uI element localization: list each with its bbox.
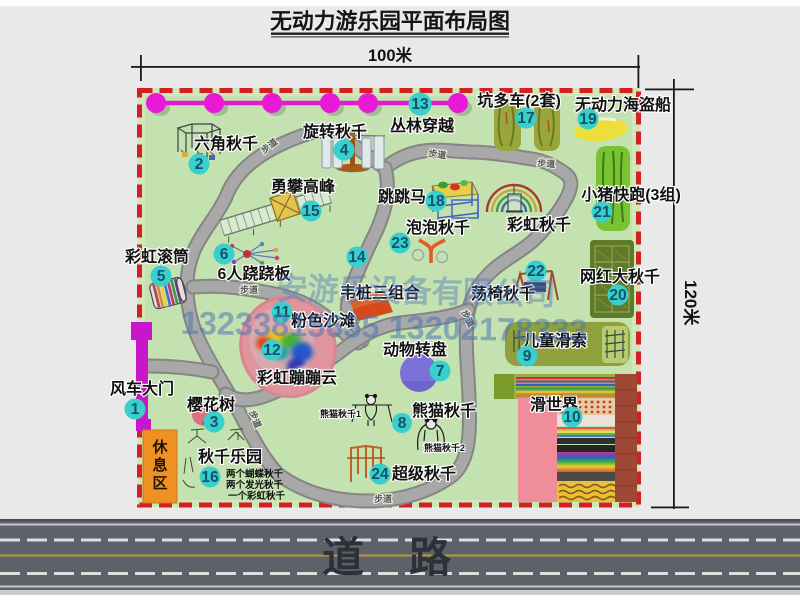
svg-text:21: 21 [593,204,611,221]
svg-text:樱花树: 樱花树 [187,395,235,414]
svg-text:风车大门: 风车大门 [110,379,174,398]
svg-text:彩虹秋千: 彩虹秋千 [506,215,571,234]
svg-text:熊猫秋千1: 熊猫秋千1 [320,408,361,419]
svg-text:16: 16 [201,469,219,486]
svg-text:12: 12 [263,342,280,359]
svg-text:路: 路 [409,534,452,581]
svg-text:彩虹滚筒: 彩虹滚筒 [124,247,189,266]
svg-text:两个蝴蝶秋千: 两个蝴蝶秋千 [226,468,284,480]
svg-text:3: 3 [210,414,219,431]
svg-text:无动力游乐园平面布局图: 无动力游乐园平面布局图 [270,9,510,34]
svg-text:息: 息 [152,456,167,474]
svg-text:23: 23 [391,235,409,252]
svg-text:14: 14 [348,249,366,266]
svg-text:8: 8 [398,415,407,432]
svg-text:秋千乐园: 秋千乐园 [198,447,262,466]
svg-text:18: 18 [427,193,445,210]
svg-text:100米: 100米 [368,45,413,65]
svg-text:步道: 步道 [240,284,258,295]
svg-text:19: 19 [579,111,597,128]
svg-text:道: 道 [322,534,364,581]
svg-text:9: 9 [523,348,532,365]
svg-text:熊猫秋千: 熊猫秋千 [412,401,476,420]
svg-text:7: 7 [436,363,445,380]
svg-text:休: 休 [151,438,168,456]
svg-text:13: 13 [411,96,429,113]
svg-text:20: 20 [609,287,626,304]
svg-text:15: 15 [302,203,320,220]
svg-text:17: 17 [517,110,534,127]
svg-text:4: 4 [340,142,349,159]
svg-text:1: 1 [131,401,140,418]
svg-text:熊猫秋千2: 熊猫秋千2 [424,442,465,453]
svg-text:步道: 步道 [374,493,392,504]
svg-text:勇攀高峰: 勇攀高峰 [271,177,336,196]
svg-text:旋转秋千: 旋转秋千 [302,122,367,141]
svg-text:区: 区 [152,475,167,492]
svg-text:安游乐设备有限公司: 安游乐设备有限公司 [276,271,556,312]
svg-text:六角秋千: 六角秋千 [194,134,258,153]
svg-text:6: 6 [220,246,229,263]
svg-text:一个彩虹秋千: 一个彩虹秋千 [228,490,286,502]
svg-text:泡泡秋千: 泡泡秋千 [406,218,470,237]
svg-text:超级秋千: 超级秋千 [391,464,456,483]
svg-text:24: 24 [371,466,389,483]
svg-text:2: 2 [195,156,204,173]
svg-text:步道: 步道 [537,157,556,169]
svg-text:坑多车(2套): 坑多车(2套) [477,91,561,110]
svg-text:小猪快跑(3组): 小猪快跑(3组) [581,185,681,204]
svg-text:网红大秋千: 网红大秋千 [580,267,660,286]
svg-text:丛林穿越: 丛林穿越 [390,116,455,135]
svg-text:5: 5 [157,268,166,285]
svg-text:两个发光秋千: 两个发光秋千 [226,479,284,491]
svg-text:120米: 120米 [681,280,701,326]
svg-text:跳跳马: 跳跳马 [378,187,426,206]
svg-text:10: 10 [563,409,580,426]
svg-text:彩虹蹦蹦云: 彩虹蹦蹦云 [256,368,337,387]
